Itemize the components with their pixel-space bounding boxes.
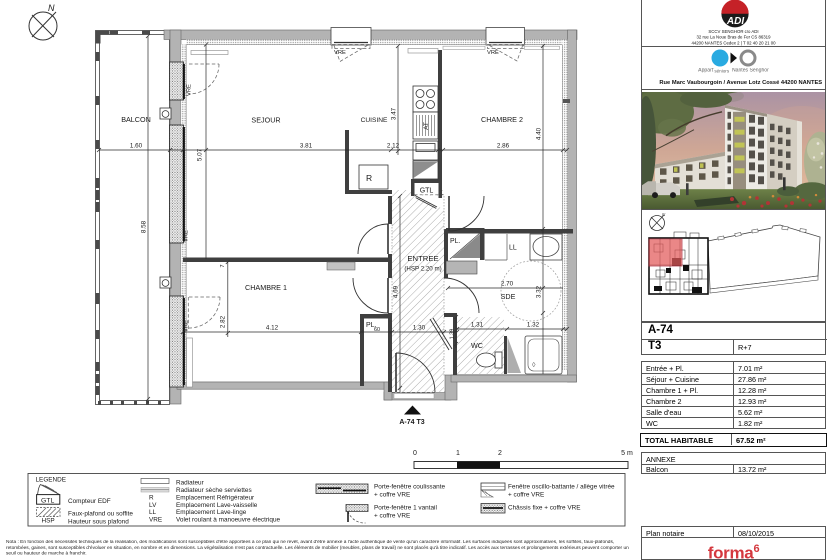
svg-text:8.58: 8.58: [141, 220, 148, 233]
svg-text:LV: LV: [149, 502, 157, 509]
svg-text:AT: AT: [423, 122, 430, 130]
svg-text:3.81: 3.81: [300, 143, 313, 150]
svg-text:Radiateur sèche serviettes: Radiateur sèche serviettes: [176, 487, 252, 494]
svg-text:VRE: VRE: [184, 320, 190, 332]
svg-text:CHAMBRE 1: CHAMBRE 1: [245, 283, 287, 292]
svg-text:3.47: 3.47: [391, 107, 398, 120]
svg-text:ADI: ADI: [726, 16, 744, 27]
svg-text:1.39: 1.39: [450, 329, 456, 340]
svg-text:2: 2: [498, 450, 502, 457]
svg-text:Porte-fenêtre 1 vantail: Porte-fenêtre 1 vantail: [374, 505, 437, 512]
svg-text:(HSP 2.20 m): (HSP 2.20 m): [404, 266, 441, 273]
svg-text:VRE: VRE: [334, 50, 346, 56]
svg-text:3.32: 3.32: [536, 285, 543, 298]
svg-text:4.40: 4.40: [536, 127, 543, 140]
svg-text:+ coffre VRE: + coffre VRE: [374, 492, 410, 499]
svg-text:Porte-fenêtre coulissante: Porte-fenêtre coulissante: [374, 484, 445, 491]
svg-text:GTL: GTL: [41, 498, 54, 505]
svg-text:WC: WC: [471, 341, 483, 350]
svg-text:2.82: 2.82: [220, 315, 227, 328]
svg-text:R: R: [366, 173, 372, 183]
svg-text:Faux-plafond ou soffite: Faux-plafond ou soffite: [68, 511, 133, 518]
svg-text:CUISINE: CUISINE: [361, 117, 388, 124]
svg-text:VRE: VRE: [149, 517, 162, 524]
svg-text:LL: LL: [149, 509, 157, 516]
svg-text:VRE: VRE: [487, 50, 499, 56]
svg-text:Emplacement Lave-linge: Emplacement Lave-linge: [176, 509, 247, 516]
svg-text:SEJOUR: SEJOUR: [251, 116, 280, 125]
svg-text:Fenêtre oscillo-battante / all: Fenêtre oscillo-battante / allège vitrée: [508, 484, 615, 491]
svg-text:1: 1: [456, 450, 460, 457]
svg-text:4.12: 4.12: [266, 325, 279, 332]
svg-text:SDE: SDE: [501, 292, 516, 301]
svg-text:+ coffre VRE: + coffre VRE: [374, 513, 410, 520]
svg-text:1.31: 1.31: [471, 322, 484, 329]
svg-text:N: N: [48, 3, 55, 13]
svg-text:4.69: 4.69: [393, 285, 400, 298]
svg-text:LL: LL: [509, 245, 517, 252]
svg-text:Hauteur sous plafond: Hauteur sous plafond: [68, 519, 129, 526]
svg-text:5 m: 5 m: [621, 450, 633, 457]
svg-text:ENTREE: ENTREE: [407, 254, 438, 263]
svg-text:◊: ◊: [532, 362, 536, 369]
svg-text:Volet roulant à manoeuvre élec: Volet roulant à manoeuvre électrique: [176, 517, 281, 524]
svg-text:7: 7: [220, 264, 226, 267]
svg-text:Châssis fixe + coffre VRE: Châssis fixe + coffre VRE: [508, 505, 581, 512]
svg-text:PL.: PL.: [450, 238, 461, 245]
svg-text:1.60: 1.60: [130, 143, 143, 150]
svg-text:1.32: 1.32: [527, 322, 540, 329]
svg-text:2.86: 2.86: [497, 143, 510, 150]
svg-text:HSP: HSP: [42, 518, 55, 525]
svg-text:Radiateur: Radiateur: [176, 480, 205, 487]
svg-text:2.12: 2.12: [387, 143, 400, 150]
svg-text:VRE: VRE: [184, 230, 190, 242]
svg-text:A-74 T3: A-74 T3: [399, 419, 424, 426]
svg-text:Emplacement Réfrigérateur: Emplacement Réfrigérateur: [176, 495, 255, 502]
svg-text:CHAMBRE 2: CHAMBRE 2: [481, 115, 523, 124]
svg-text:N: N: [662, 212, 666, 217]
svg-text:0: 0: [413, 450, 417, 457]
svg-text:2.70: 2.70: [501, 281, 514, 288]
svg-text:LEGENDE: LEGENDE: [36, 477, 67, 484]
svg-text:VRE: VRE: [187, 84, 193, 96]
svg-text:Emplacement Lave-vaisselle: Emplacement Lave-vaisselle: [176, 502, 258, 509]
svg-text:R: R: [149, 495, 154, 502]
svg-text:GTL: GTL: [420, 188, 434, 195]
svg-text:BALCON: BALCON: [121, 115, 151, 124]
svg-text:5.07: 5.07: [197, 148, 204, 161]
svg-text:1.30: 1.30: [413, 325, 426, 332]
svg-text:+ coffre VRE: + coffre VRE: [508, 492, 544, 499]
svg-text:Compteur EDF: Compteur EDF: [68, 498, 111, 505]
